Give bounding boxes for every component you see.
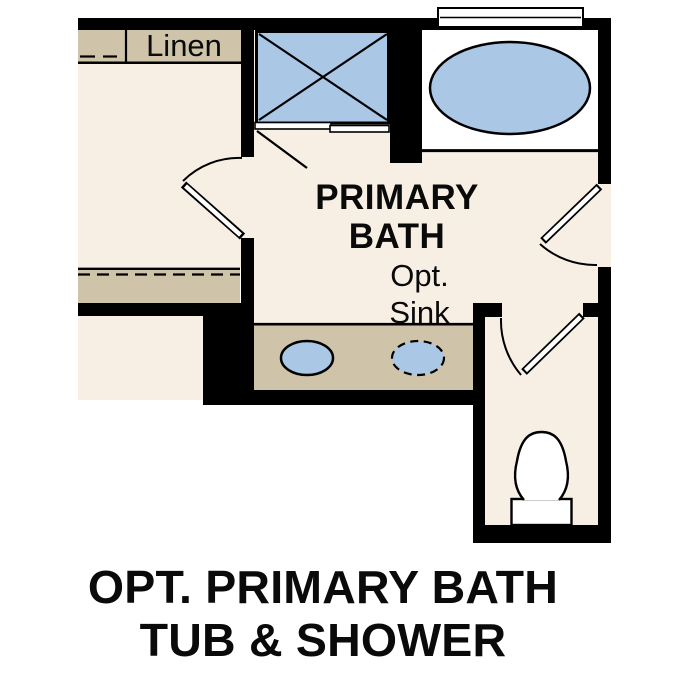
optional-sink-icon bbox=[392, 341, 444, 375]
wall-below-vanity bbox=[203, 390, 485, 405]
optional-sink-label: Opt.Sink bbox=[332, 258, 507, 331]
linen-closet-label: Linen bbox=[128, 28, 240, 63]
caption-line2: TUB & SHOWER bbox=[140, 614, 507, 666]
optional-sink-line2: Sink bbox=[389, 295, 449, 330]
closet-floor bbox=[78, 63, 241, 268]
wall-right-lower bbox=[598, 267, 611, 543]
shower-door-panel bbox=[255, 123, 331, 130]
room-name-line1: PRIMARY bbox=[315, 178, 479, 217]
entry-door-opening-floor bbox=[598, 184, 611, 267]
toilet bbox=[512, 432, 572, 525]
wardrobe-shelf-band bbox=[78, 268, 240, 303]
wall-left-lower bbox=[241, 238, 254, 304]
wardrobe-shelf bbox=[78, 268, 240, 303]
tub-alcove bbox=[422, 30, 598, 152]
shower-door-panel bbox=[330, 126, 389, 133]
floor-plan-figure: Linen PRIMARYBATH Opt.Sink OPT. PRIMARY … bbox=[0, 0, 687, 687]
sink-icon bbox=[281, 341, 333, 375]
wall-chunk-left-of-vanity bbox=[203, 303, 254, 403]
wall-shower-tub bbox=[390, 30, 422, 163]
figure-caption: OPT. PRIMARY BATHTUB & SHOWER bbox=[32, 561, 614, 667]
optional-sink-line1: Opt. bbox=[390, 258, 449, 293]
room-name-line2: BATH bbox=[349, 217, 446, 256]
window bbox=[438, 8, 583, 27]
toilet-tank-icon bbox=[512, 499, 572, 525]
wall-wc-bottom bbox=[473, 525, 611, 543]
lower-room-floor bbox=[78, 315, 203, 400]
caption-line1: OPT. PRIMARY BATH bbox=[88, 561, 558, 613]
toilet-bowl-icon bbox=[515, 432, 568, 500]
wall-right-upper bbox=[598, 18, 611, 184]
vanity bbox=[254, 324, 473, 390]
wall-closet-shower bbox=[241, 30, 254, 157]
soaking-tub-icon bbox=[430, 42, 590, 134]
room-name-label: PRIMARYBATH bbox=[266, 179, 528, 256]
wall-wc-left bbox=[473, 303, 485, 543]
